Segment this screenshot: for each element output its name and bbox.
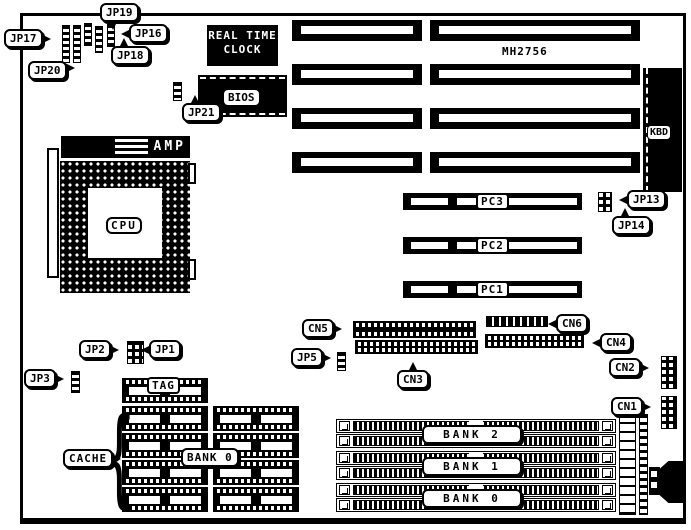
connector-cn6 bbox=[486, 316, 548, 327]
callout-bios: BIOS bbox=[222, 88, 261, 107]
cn5-label: CN5 bbox=[308, 322, 328, 335]
isa-slot bbox=[292, 108, 422, 129]
isa-slot bbox=[430, 20, 640, 41]
cn6-label: CN6 bbox=[562, 317, 582, 330]
leader-arrow-icon bbox=[641, 402, 651, 412]
jp20-label: JP20 bbox=[34, 64, 61, 77]
leader-arrow-icon bbox=[639, 363, 649, 373]
jp21-label: JP21 bbox=[188, 106, 215, 119]
cn2-label: CN2 bbox=[615, 361, 635, 374]
jumper-block-jp13-jp14 bbox=[598, 192, 612, 212]
callout-cn5: CN5 bbox=[302, 319, 334, 338]
callout-jp14: JP14 bbox=[612, 216, 651, 235]
jp1-label: JP1 bbox=[155, 343, 175, 356]
jumper-block-jp21 bbox=[173, 82, 182, 101]
simm-bank0-label: BANK 0 bbox=[422, 489, 522, 508]
pc1-label: PC1 bbox=[476, 281, 509, 298]
callout-jp2: JP2 bbox=[79, 340, 111, 359]
simm-bank2-label: BANK 2 bbox=[422, 425, 522, 444]
board-model: MH2756 bbox=[502, 45, 548, 58]
leader-arrow-icon bbox=[620, 208, 630, 218]
jumper-block-jp19 bbox=[84, 23, 92, 46]
real-time-clock-chip: REAL TIME CLOCK bbox=[207, 25, 278, 66]
jp14-label: JP14 bbox=[618, 219, 645, 232]
jumper-block-jp20 bbox=[73, 25, 81, 63]
isa-slot bbox=[292, 152, 422, 173]
leader-arrow-icon bbox=[54, 374, 64, 384]
cpu-label: CPU bbox=[106, 217, 142, 234]
leader-arrow-icon bbox=[619, 195, 629, 205]
cache-bank0-label: BANK 0 bbox=[181, 448, 239, 467]
isa-slot bbox=[292, 64, 422, 85]
jumper-block-jp5 bbox=[337, 352, 346, 371]
din-pin-icon bbox=[651, 471, 657, 477]
leader-arrow-icon bbox=[119, 38, 129, 48]
cache-chip bbox=[213, 487, 299, 512]
leader-arrow-icon bbox=[332, 324, 342, 334]
leader-arrow-icon bbox=[592, 338, 602, 348]
leader-arrow-icon bbox=[109, 345, 119, 355]
keyboard-din-connector-icon bbox=[659, 461, 686, 503]
edge-header bbox=[639, 414, 648, 515]
leader-arrow-icon bbox=[141, 345, 151, 355]
leader-arrow-icon bbox=[65, 63, 75, 73]
amp-label: AMP bbox=[154, 139, 186, 154]
cn1-label: CN1 bbox=[617, 400, 637, 413]
jp19-label: JP19 bbox=[106, 6, 133, 19]
callout-jp3: JP3 bbox=[24, 369, 56, 388]
leader-arrow-icon bbox=[111, 454, 121, 464]
socket-stripes-icon bbox=[115, 139, 148, 155]
zif-lever bbox=[47, 148, 59, 278]
rtc-label-line2: CLOCK bbox=[207, 43, 278, 57]
leader-arrow-icon bbox=[190, 95, 200, 105]
leader-arrow-icon bbox=[321, 353, 331, 363]
jp2-label: JP2 bbox=[85, 343, 105, 356]
rtc-label-line1: REAL TIME bbox=[207, 29, 278, 43]
cpu-socket-lever-bar: AMP bbox=[61, 136, 190, 158]
bios-label: BIOS bbox=[228, 91, 255, 104]
isa-slot bbox=[430, 152, 640, 173]
socket-clip-icon bbox=[188, 163, 196, 184]
jp13-label: JP13 bbox=[633, 193, 660, 206]
isa-slot bbox=[430, 64, 640, 85]
callout-cn3: CN3 bbox=[397, 370, 429, 389]
jp3-label: JP3 bbox=[30, 372, 50, 385]
callout-cn1: CN1 bbox=[611, 397, 643, 416]
callout-jp20: JP20 bbox=[28, 61, 67, 80]
tag-label: TAG bbox=[147, 377, 180, 394]
callout-cn4: CN4 bbox=[600, 333, 632, 352]
callout-cn6: CN6 bbox=[556, 314, 588, 333]
power-connector bbox=[619, 414, 636, 515]
jp17-label: JP17 bbox=[10, 32, 37, 45]
jumper-block-jp17 bbox=[62, 25, 70, 63]
connector-cn4 bbox=[485, 334, 584, 348]
jp16-label: JP16 bbox=[135, 27, 162, 40]
isa-slot bbox=[430, 108, 640, 129]
jumper-block-jp18 bbox=[95, 26, 103, 53]
connector-cn2 bbox=[661, 356, 677, 389]
simm-bank1-label: BANK 1 bbox=[422, 457, 522, 476]
leader-arrow-icon bbox=[41, 34, 51, 44]
socket-clip-icon bbox=[188, 259, 196, 280]
leader-arrow-icon bbox=[108, 20, 118, 30]
callout-jp16: JP16 bbox=[129, 24, 168, 43]
din-pin-icon bbox=[651, 482, 657, 488]
isa-slot bbox=[292, 20, 422, 41]
jp18-label: JP18 bbox=[117, 49, 144, 62]
cn3-label: CN3 bbox=[403, 373, 423, 386]
motherboard-diagram: JP19 JP17 JP16 JP20 JP18 REAL TIME CLOCK… bbox=[0, 0, 691, 530]
connector-cn5 bbox=[353, 321, 476, 338]
jp5-label: JP5 bbox=[297, 351, 317, 364]
callout-cn2: CN2 bbox=[609, 358, 641, 377]
callout-jp19: JP19 bbox=[100, 3, 139, 22]
pc3-label: PC3 bbox=[476, 193, 509, 210]
callout-jp17: JP17 bbox=[4, 29, 43, 48]
leader-arrow-icon bbox=[408, 362, 418, 372]
callout-jp5: JP5 bbox=[291, 348, 323, 367]
pc2-label: PC2 bbox=[476, 237, 509, 254]
callout-jp1: JP1 bbox=[149, 340, 181, 359]
cache-label: CACHE bbox=[69, 452, 107, 465]
kbd-label: KBD bbox=[647, 125, 671, 140]
cache-chip bbox=[213, 406, 299, 431]
callout-jp18: JP18 bbox=[111, 46, 150, 65]
connector-cn3 bbox=[355, 340, 478, 354]
callout-cache: CACHE bbox=[63, 449, 113, 468]
jumper-block-jp3 bbox=[71, 371, 80, 393]
callout-jp21: JP21 bbox=[182, 103, 221, 122]
leader-arrow-icon bbox=[121, 29, 131, 39]
leader-arrow-icon bbox=[548, 319, 558, 329]
callout-jp13: JP13 bbox=[627, 190, 666, 209]
connector-cn1 bbox=[661, 396, 677, 429]
cn4-label: CN4 bbox=[606, 336, 626, 349]
